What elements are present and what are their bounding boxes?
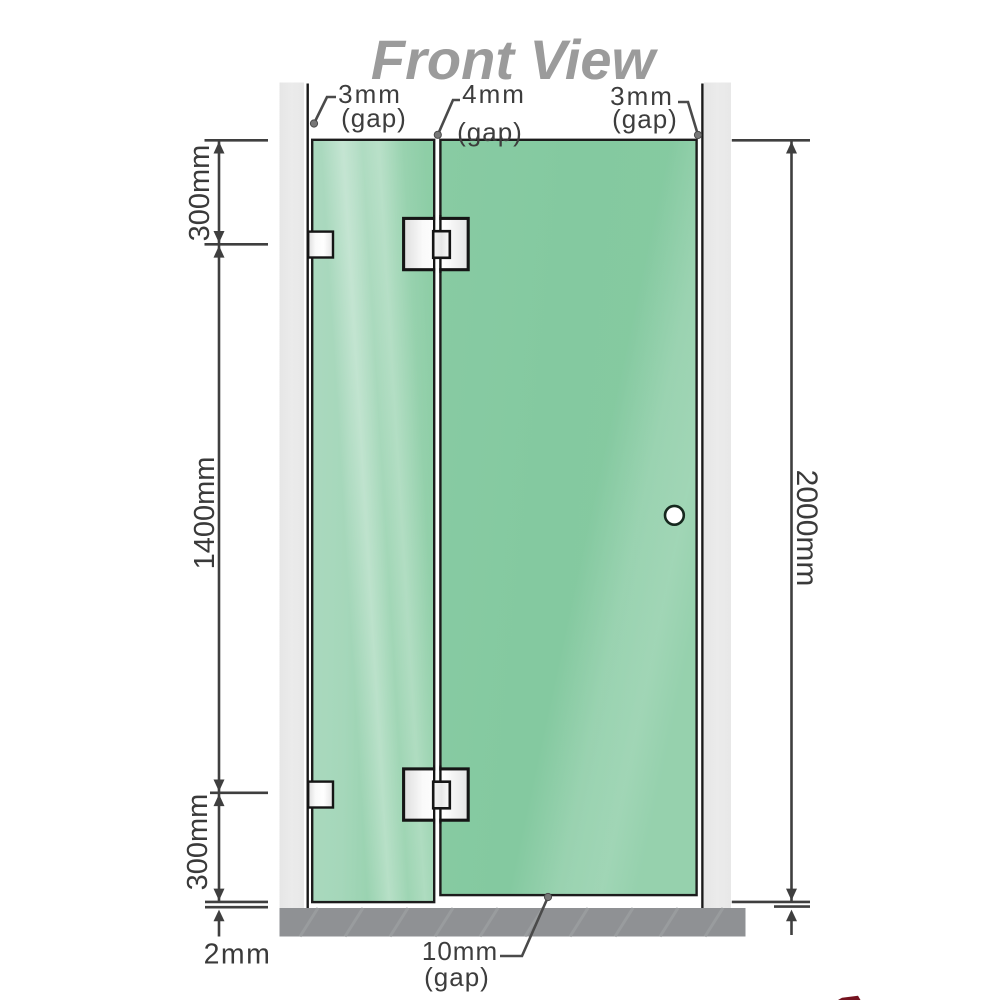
svg-text:300mm: 300mm (184, 145, 216, 242)
svg-text:(gap): (gap) (341, 103, 407, 133)
svg-text:(gap): (gap) (612, 104, 678, 134)
svg-text:2000mm: 2000mm (790, 470, 823, 587)
svg-text:1400mm: 1400mm (189, 457, 221, 570)
svg-text:(gap): (gap) (457, 117, 523, 147)
svg-text:(gap): (gap) (424, 962, 490, 992)
svg-text:4mm: 4mm (462, 79, 526, 109)
svg-text:2mm: 2mm (204, 939, 272, 971)
svg-text:300mm: 300mm (182, 794, 214, 891)
